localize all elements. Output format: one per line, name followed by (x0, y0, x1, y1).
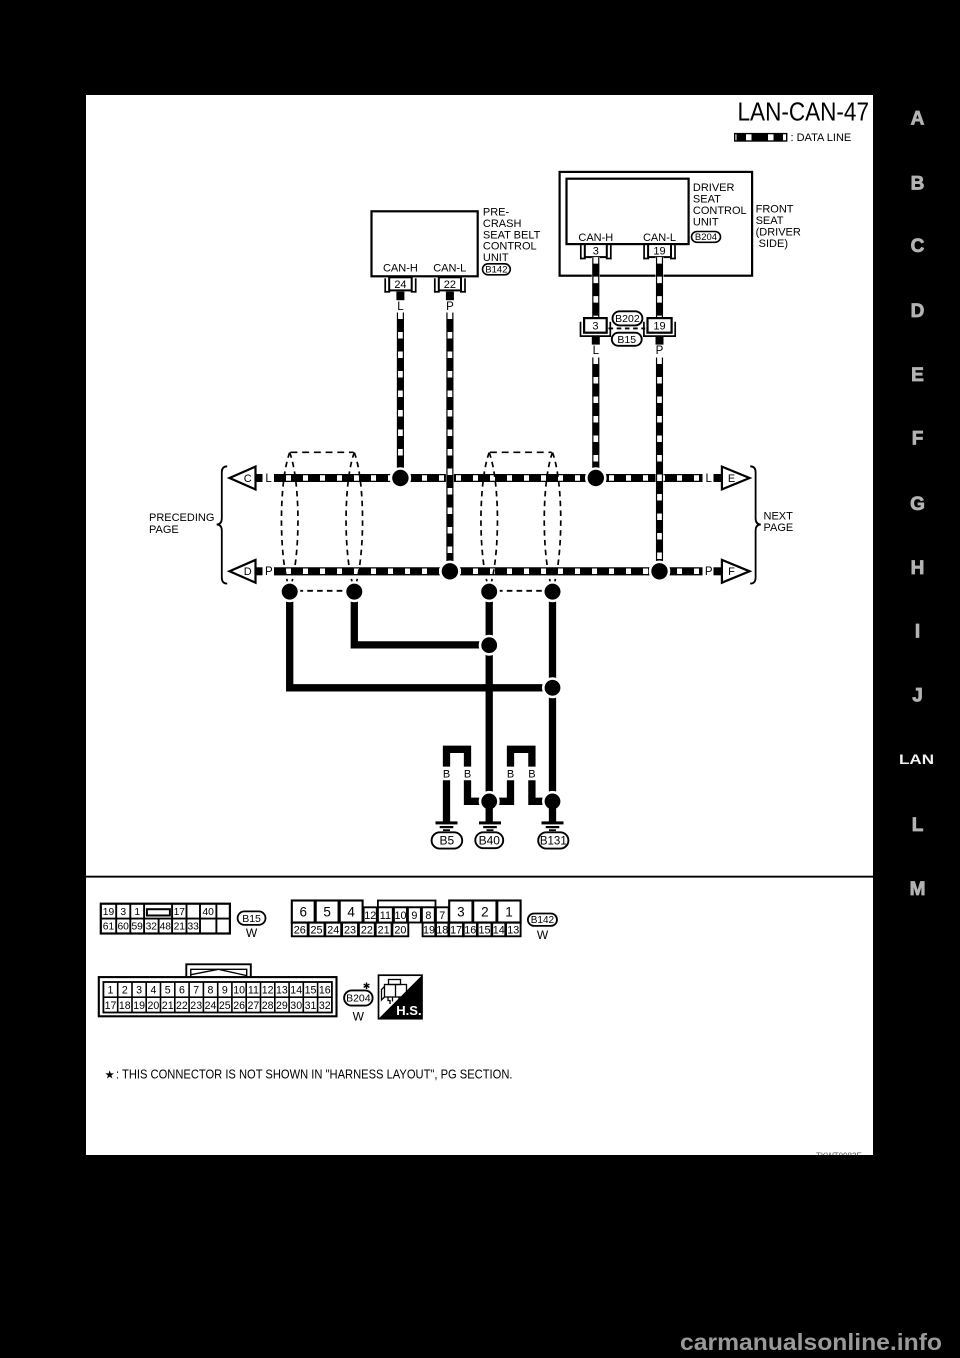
svg-text:3: 3 (593, 246, 599, 258)
svg-text:19: 19 (653, 320, 665, 332)
svg-text:CAN-H: CAN-H (383, 263, 418, 275)
svg-text:E: E (911, 365, 924, 386)
svg-text:17: 17 (450, 924, 462, 936)
svg-text:7: 7 (193, 985, 199, 997)
svg-text:L: L (705, 473, 712, 485)
svg-text:26: 26 (294, 924, 306, 936)
svg-text:W: W (246, 926, 258, 940)
svg-text:21: 21 (378, 924, 390, 936)
svg-text:28: 28 (262, 1000, 274, 1012)
svg-text:26: 26 (233, 1000, 245, 1012)
svg-text:W: W (353, 1010, 365, 1024)
svg-text:B142: B142 (531, 915, 555, 926)
svg-text:B131: B131 (540, 835, 567, 847)
svg-text:B: B (443, 769, 450, 781)
svg-text:B142: B142 (485, 265, 507, 276)
svg-text:14: 14 (493, 924, 505, 936)
svg-text:L: L (265, 473, 272, 485)
svg-text:59: 59 (131, 922, 143, 933)
svg-text:8: 8 (425, 910, 431, 922)
svg-text:13: 13 (507, 924, 519, 936)
svg-text:25: 25 (311, 924, 323, 936)
svg-text:LAN: LAN (899, 752, 934, 767)
svg-text:10: 10 (394, 910, 406, 922)
svg-text:W: W (537, 928, 549, 942)
svg-text:L: L (912, 815, 924, 836)
svg-text:L: L (397, 301, 404, 313)
svg-text:J: J (912, 685, 923, 706)
svg-text:B202: B202 (615, 313, 640, 325)
svg-text:3: 3 (457, 904, 465, 919)
svg-text:B: B (464, 769, 471, 781)
svg-text:13: 13 (276, 985, 288, 997)
svg-text:27: 27 (248, 1000, 260, 1012)
svg-text:61: 61 (103, 922, 115, 933)
svg-text:32: 32 (146, 922, 158, 933)
svg-text:PRECEDING: PRECEDING (149, 512, 214, 524)
svg-text:6: 6 (299, 904, 307, 919)
svg-text:LAN-CAN-47: LAN-CAN-47 (738, 97, 870, 127)
svg-text:2: 2 (122, 985, 128, 997)
svg-text:D: D (911, 301, 925, 322)
svg-text:PAGE: PAGE (764, 522, 794, 534)
svg-text:SEAT: SEAT (693, 193, 721, 205)
svg-text:29: 29 (276, 1000, 288, 1012)
svg-text:9: 9 (411, 910, 417, 922)
svg-text:11: 11 (380, 910, 391, 922)
svg-text:17: 17 (105, 1000, 117, 1012)
svg-text:20: 20 (148, 1000, 160, 1012)
svg-text:P: P (705, 566, 713, 578)
svg-text:B15: B15 (617, 334, 636, 346)
svg-text:D: D (244, 566, 252, 578)
svg-text:19: 19 (103, 907, 115, 918)
svg-text:23: 23 (190, 1000, 202, 1012)
svg-text:carmanualsonline.info: carmanualsonline.info (680, 1329, 942, 1355)
svg-text:16: 16 (319, 985, 331, 997)
svg-text:22: 22 (176, 1000, 188, 1012)
svg-text:I: I (915, 621, 920, 642)
svg-text:9: 9 (222, 985, 228, 997)
svg-text:CONTROL: CONTROL (693, 205, 747, 217)
svg-text:DRIVER: DRIVER (693, 182, 735, 194)
svg-text:31: 31 (305, 1000, 317, 1012)
svg-text:4: 4 (150, 985, 156, 997)
svg-text:NEXT: NEXT (764, 511, 794, 523)
svg-text:2: 2 (481, 904, 489, 919)
svg-text:E: E (728, 473, 735, 485)
svg-text:1: 1 (505, 904, 513, 919)
svg-text:11: 11 (248, 985, 259, 997)
svg-text:40: 40 (202, 907, 214, 918)
svg-text:25: 25 (219, 1000, 231, 1012)
svg-text:L: L (593, 345, 600, 357)
svg-text:18: 18 (436, 924, 448, 936)
svg-text:24: 24 (327, 924, 339, 936)
svg-text:SIDE): SIDE) (756, 238, 788, 250)
svg-text:G: G (910, 494, 925, 515)
svg-text:SEAT BELT: SEAT BELT (483, 229, 541, 241)
svg-text:CAN-L: CAN-L (643, 232, 676, 244)
svg-text:48: 48 (160, 922, 172, 933)
svg-text:M: M (910, 879, 926, 900)
svg-text:B40: B40 (479, 833, 501, 847)
svg-text:PRE-: PRE- (483, 207, 510, 219)
svg-text:16: 16 (464, 924, 476, 936)
svg-text:A: A (911, 108, 925, 129)
svg-text:21: 21 (174, 922, 186, 933)
svg-text:UNIT: UNIT (693, 216, 719, 228)
svg-text:: DATA LINE: : DATA LINE (791, 132, 852, 144)
svg-text:B5: B5 (440, 834, 455, 848)
svg-text:3: 3 (136, 985, 142, 997)
svg-text:PAGE: PAGE (149, 524, 179, 536)
svg-text:CONTROL: CONTROL (483, 241, 537, 253)
svg-text:5: 5 (323, 904, 331, 919)
svg-text:★: ★ (105, 1069, 115, 1081)
svg-text:1: 1 (134, 907, 140, 918)
svg-text:CAN-L: CAN-L (433, 263, 466, 275)
svg-text:B204: B204 (346, 993, 371, 1005)
svg-text:60: 60 (117, 922, 129, 933)
svg-text:FRONT: FRONT (756, 203, 794, 215)
svg-text:F: F (912, 428, 924, 449)
svg-text:P: P (265, 566, 273, 578)
svg-text:23: 23 (344, 924, 356, 936)
svg-text:3: 3 (592, 320, 598, 332)
svg-text:12: 12 (364, 910, 376, 922)
svg-text:CAN-H: CAN-H (578, 232, 613, 244)
svg-text:10: 10 (233, 985, 245, 997)
svg-text:12: 12 (262, 985, 274, 997)
svg-text:(DRIVER: (DRIVER (756, 227, 801, 239)
svg-text:H: H (911, 558, 925, 579)
svg-text:22: 22 (361, 924, 373, 936)
svg-text:C: C (244, 473, 252, 485)
svg-text:B15: B15 (242, 913, 261, 925)
svg-text:19: 19 (653, 246, 665, 258)
svg-text:33: 33 (187, 922, 199, 933)
svg-text:C: C (911, 236, 925, 257)
svg-text:18: 18 (119, 1000, 131, 1012)
svg-text:P: P (446, 301, 454, 313)
svg-text:30: 30 (290, 1000, 302, 1012)
svg-text:20: 20 (394, 924, 406, 936)
svg-text:6: 6 (179, 985, 185, 997)
svg-text:UNIT: UNIT (483, 252, 509, 264)
svg-text:3: 3 (120, 907, 126, 918)
svg-text:21: 21 (162, 1000, 174, 1012)
svg-text:22: 22 (444, 279, 456, 291)
svg-text:15: 15 (305, 985, 317, 997)
svg-text:CRASH: CRASH (483, 218, 522, 230)
svg-text:8: 8 (208, 985, 214, 997)
svg-text:4: 4 (347, 904, 355, 919)
svg-text:B: B (528, 769, 535, 781)
svg-text:17: 17 (174, 907, 186, 918)
svg-text:SEAT: SEAT (756, 215, 784, 227)
svg-text:B: B (911, 173, 925, 194)
svg-text:32: 32 (319, 1000, 331, 1012)
svg-text:19: 19 (133, 1000, 145, 1012)
svg-text:15: 15 (479, 924, 491, 936)
svg-text:14: 14 (290, 985, 302, 997)
svg-text:P: P (656, 345, 664, 357)
svg-text:B204: B204 (695, 232, 717, 243)
svg-text:: THIS CONNECTOR IS NOT SHOWN: : THIS CONNECTOR IS NOT SHOWN IN "HARNES… (116, 1066, 513, 1081)
svg-text:19: 19 (423, 924, 435, 936)
svg-text:H.S.: H.S. (396, 1003, 421, 1018)
svg-text:24: 24 (205, 1000, 217, 1012)
svg-text:F: F (728, 566, 735, 578)
svg-text:5: 5 (165, 985, 171, 997)
svg-text:B: B (507, 769, 514, 781)
svg-text:24: 24 (394, 279, 406, 291)
svg-text:1: 1 (108, 985, 114, 997)
svg-text:7: 7 (439, 910, 445, 922)
svg-text:✱: ✱ (363, 981, 371, 991)
